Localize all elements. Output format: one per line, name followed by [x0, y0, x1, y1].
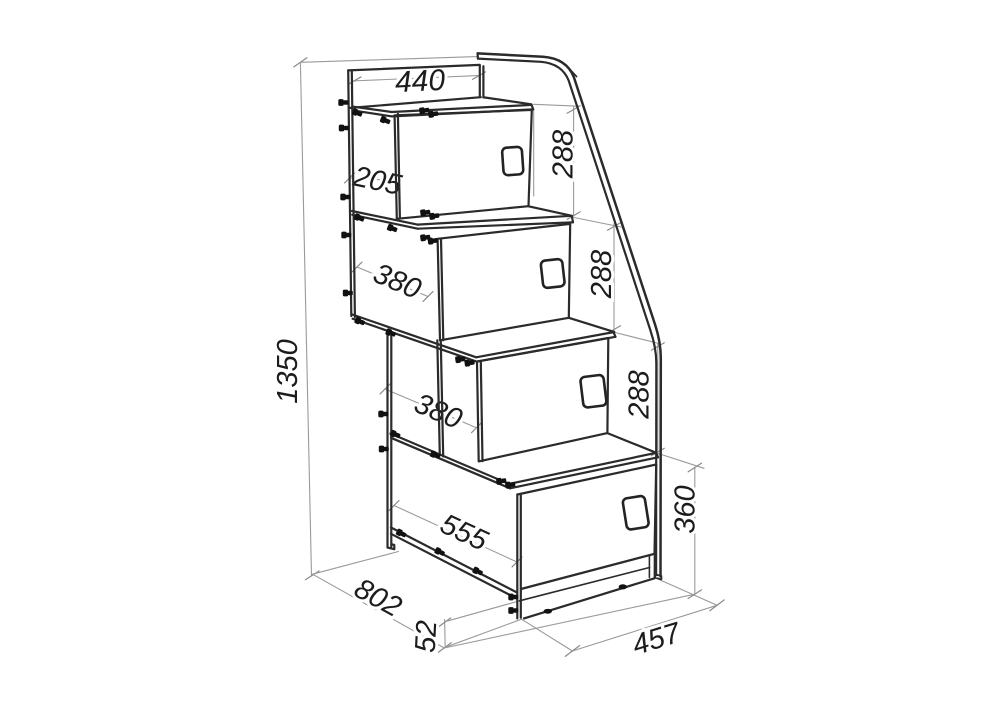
svg-text:52: 52 — [410, 620, 444, 654]
svg-text:360: 360 — [670, 485, 702, 533]
svg-text:288: 288 — [586, 250, 618, 299]
svg-text:1350: 1350 — [272, 339, 304, 404]
svg-text:288: 288 — [548, 130, 580, 179]
svg-text:288: 288 — [624, 370, 656, 419]
